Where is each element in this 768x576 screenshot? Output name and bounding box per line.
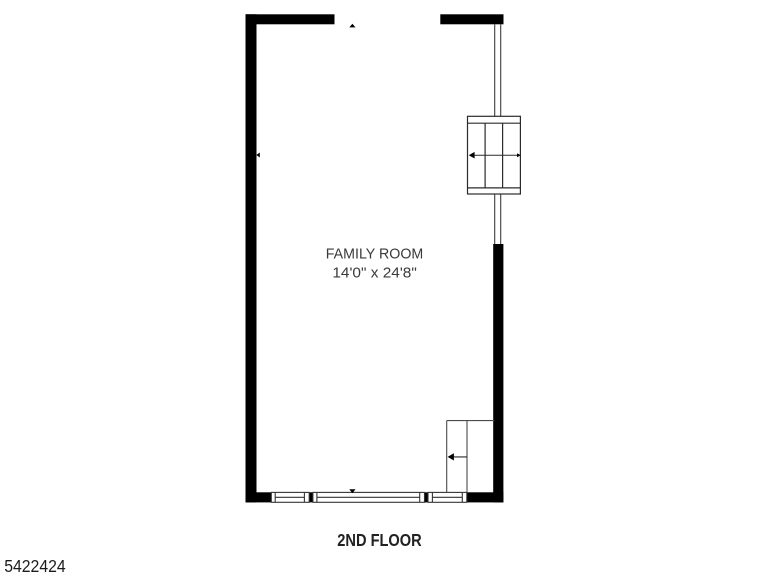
svg-text:5422424: 5422424 bbox=[4, 556, 66, 576]
svg-text:FAMILY ROOM: FAMILY ROOM bbox=[326, 247, 424, 263]
svg-text:2ND FLOOR: 2ND FLOOR bbox=[337, 530, 422, 550]
svg-text:14'0" x 24'8": 14'0" x 24'8" bbox=[332, 265, 417, 281]
